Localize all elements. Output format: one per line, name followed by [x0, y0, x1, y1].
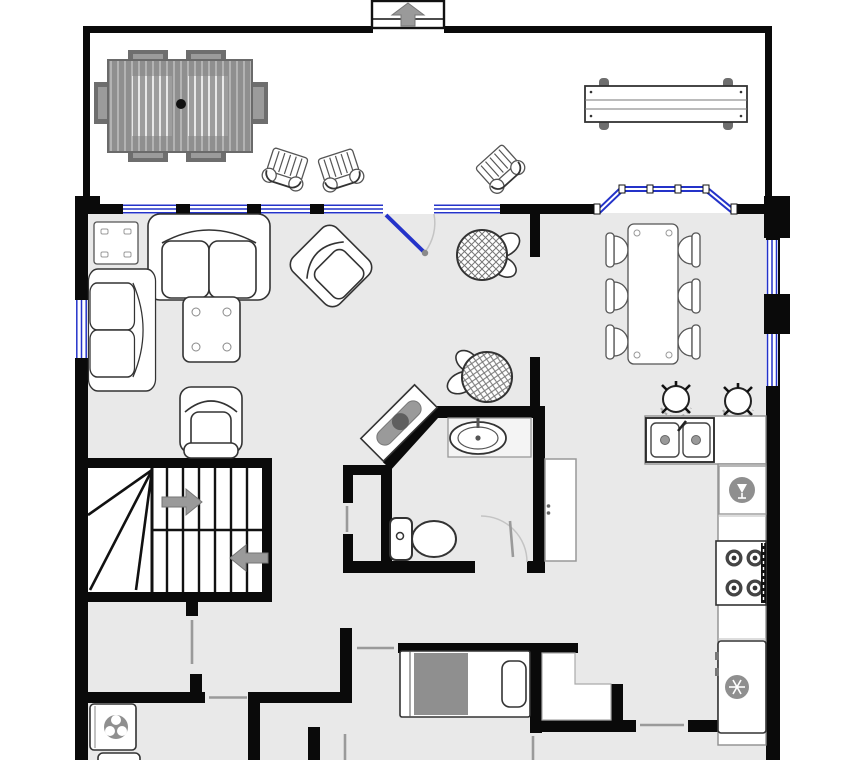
- recliner: [180, 387, 242, 458]
- pantry-cabinet: [545, 459, 576, 561]
- window: [190, 204, 247, 214]
- deck-railing-right: [765, 26, 772, 196]
- end-table: [94, 222, 138, 264]
- floor-plan: [0, 0, 862, 760]
- window: [324, 204, 383, 214]
- refrigerator: [715, 641, 766, 733]
- deck-chair: [260, 146, 311, 192]
- stove: [716, 541, 766, 605]
- deck: [83, 1, 772, 196]
- bed: [400, 651, 530, 717]
- picnic-table: [94, 50, 268, 162]
- window: [766, 334, 778, 386]
- deck-railing-top-right: [444, 26, 772, 33]
- window: [123, 204, 176, 214]
- deck-railing-top-left: [83, 26, 373, 33]
- window: [434, 204, 500, 214]
- blanket: [414, 653, 468, 715]
- umbrella-hole: [176, 99, 186, 109]
- sofa: [88, 269, 155, 391]
- stairs: [86, 458, 272, 602]
- deck-railing-left: [83, 26, 90, 196]
- dishwasher: [719, 466, 766, 514]
- dryer: [98, 753, 140, 760]
- deck-chair: [473, 142, 528, 196]
- loveseat: [148, 214, 270, 300]
- washer: [90, 704, 136, 750]
- window: [261, 204, 310, 214]
- bench: [585, 78, 747, 130]
- dining-table: [628, 224, 678, 364]
- bay-window: [594, 185, 737, 214]
- bathroom-vanity: [448, 418, 531, 457]
- deck-chair: [315, 147, 366, 193]
- entry-steps: [372, 1, 444, 28]
- toilet: [390, 518, 456, 560]
- window: [766, 240, 778, 294]
- floor-plan-canvas: [0, 0, 862, 760]
- pillow: [502, 661, 526, 707]
- kitchen-sink: [646, 418, 714, 462]
- coffee-table: [183, 297, 240, 362]
- window: [75, 300, 88, 358]
